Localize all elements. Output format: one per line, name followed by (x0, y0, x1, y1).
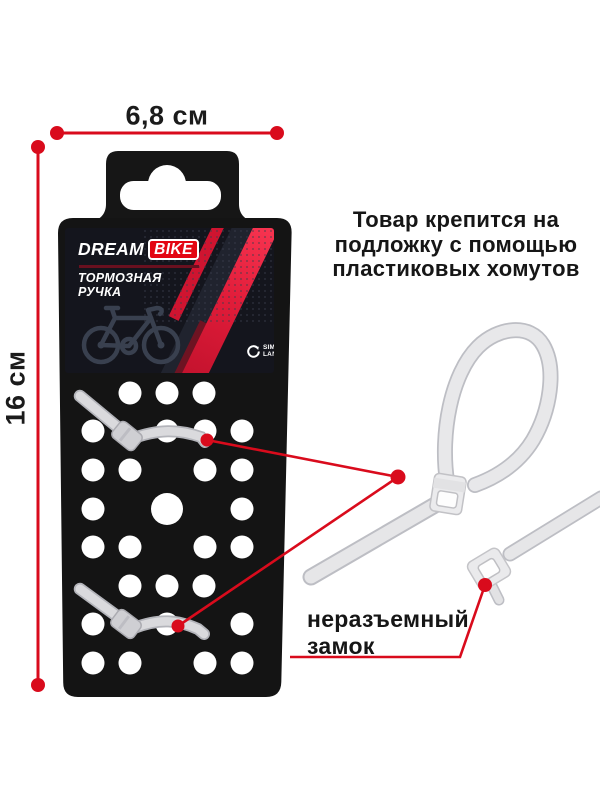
brand-dream-text: DREAM (78, 239, 144, 260)
cable-tie-loop-head (429, 473, 467, 516)
pegboard-hole (194, 459, 217, 482)
pegboard-hole (194, 536, 217, 559)
pegboard-hole (82, 498, 105, 521)
pegboard-hole (82, 536, 105, 559)
packaging-card: DREAM BIKE ТОРМОЗНАЯ РУЧКА (65, 228, 274, 373)
simaland-text: SIMA LAND (263, 345, 274, 358)
cable-tie-loop-photo (311, 330, 550, 577)
simaland-text-line2: LAND (263, 352, 274, 359)
pegboard-hole (231, 613, 254, 636)
bicycle-icon (71, 296, 199, 368)
pegboard-hole (119, 459, 142, 482)
pegboard-hole (119, 575, 142, 598)
pegboard-hole (231, 536, 254, 559)
brand-bike-badge: BIKE (148, 239, 199, 260)
pegboard-hole (193, 575, 216, 598)
callout-dot-bottom-tie (172, 620, 185, 633)
brand-divider (79, 265, 199, 268)
pegboard-hole (194, 652, 217, 675)
height-dimension-label: 16 см (1, 350, 32, 425)
product-title-line1: ТОРМОЗНАЯ (78, 271, 162, 285)
width-dimension-dot-right (270, 126, 284, 140)
pegboard-hole (82, 613, 105, 636)
pegboard-hole (119, 382, 142, 405)
callout-dot-top-tie (201, 434, 214, 447)
product-title: ТОРМОЗНАЯ РУЧКА (78, 271, 162, 299)
lock-label-line1: неразъемный (307, 606, 469, 633)
pegboard-hole (82, 459, 105, 482)
height-dimension-dot-bottom (31, 678, 45, 692)
artwork-layer (0, 0, 600, 800)
hanger-tab (88, 151, 257, 222)
height-dimension-dot-top (31, 140, 45, 154)
pegboard-hole (82, 420, 105, 443)
pegboard-hole (82, 652, 105, 675)
pegboard-hole (156, 575, 179, 598)
pegboard-hole (231, 459, 254, 482)
width-dimension-dot-left (50, 126, 64, 140)
pegboard-hole (119, 652, 142, 675)
attach-note-line1: Товар крепится на (310, 208, 600, 233)
width-dimension-label: 6,8 см (125, 101, 208, 132)
callout-dot-loop-tie (391, 470, 406, 485)
euro-slot-hole (120, 181, 221, 210)
attach-note-line3: пластиковых хомутов (310, 257, 600, 282)
simaland-logo: SIMA LAND (246, 344, 274, 359)
pegboard-hole (119, 536, 142, 559)
simaland-swirl-icon (246, 344, 261, 359)
pegboard-hole (156, 382, 179, 405)
pegboard-hole (231, 652, 254, 675)
pegboard-hole (231, 420, 254, 443)
callout-dot-lock (478, 578, 492, 592)
lock-label: неразъемный замок (307, 606, 469, 659)
attach-note-line2: подложку с помощью (310, 233, 600, 258)
brand-logo: DREAM BIKE (78, 239, 199, 260)
product-annotation-image: DREAM BIKE ТОРМОЗНАЯ РУЧКА (0, 0, 600, 800)
lock-label-line2: замок (307, 633, 469, 660)
attach-note: Товар крепится на подложку с помощью пла… (310, 208, 600, 282)
pegboard-hole (193, 382, 216, 405)
pegboard-hole (231, 498, 254, 521)
pegboard-hole-large (151, 493, 183, 525)
